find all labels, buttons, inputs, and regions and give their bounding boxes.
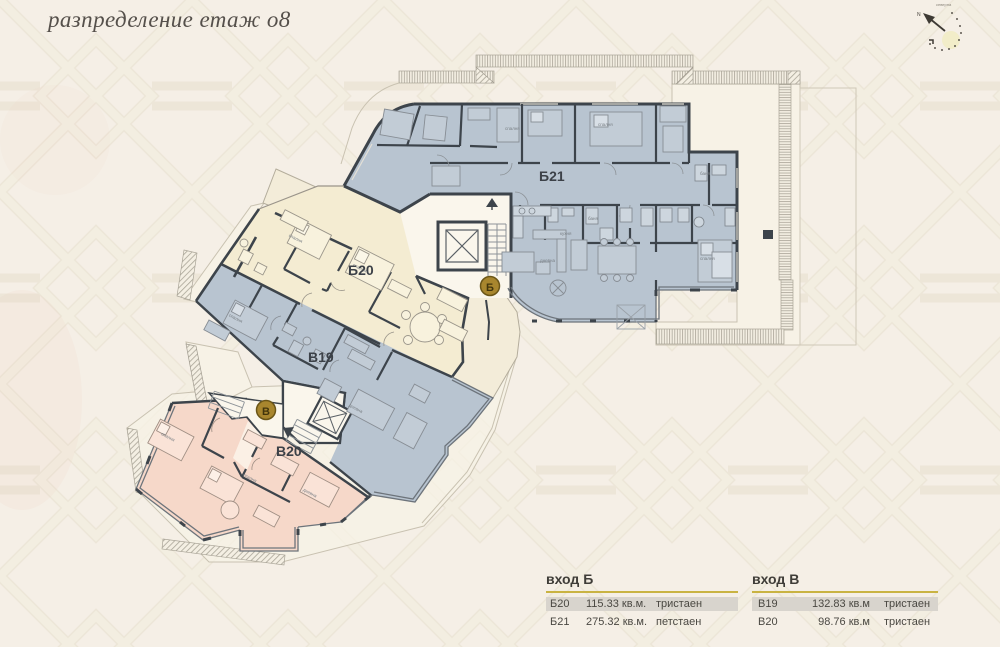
svg-text:В: В (262, 406, 270, 418)
svg-text:спалня: спалня (700, 256, 715, 261)
svg-text:Б: Б (486, 282, 494, 294)
svg-text:Б21: Б21 (539, 168, 565, 184)
svg-text:баня: баня (588, 216, 598, 221)
svg-text:N: N (917, 12, 921, 18)
svg-text:кухня: кухня (560, 231, 572, 236)
svg-text:дневна: дневна (540, 258, 555, 263)
svg-text:В20: В20 (276, 443, 302, 459)
svg-text:Б20: Б20 (348, 262, 374, 278)
svg-text:баня: баня (700, 171, 710, 176)
svg-text:спалня: спалня (505, 126, 520, 131)
svg-text:северна: северна (936, 2, 952, 7)
svg-text:В19: В19 (308, 349, 334, 365)
svg-text:спалня: спалня (598, 122, 613, 127)
svg-text:разпределение етаж о8: разпределение етаж о8 (46, 7, 291, 32)
